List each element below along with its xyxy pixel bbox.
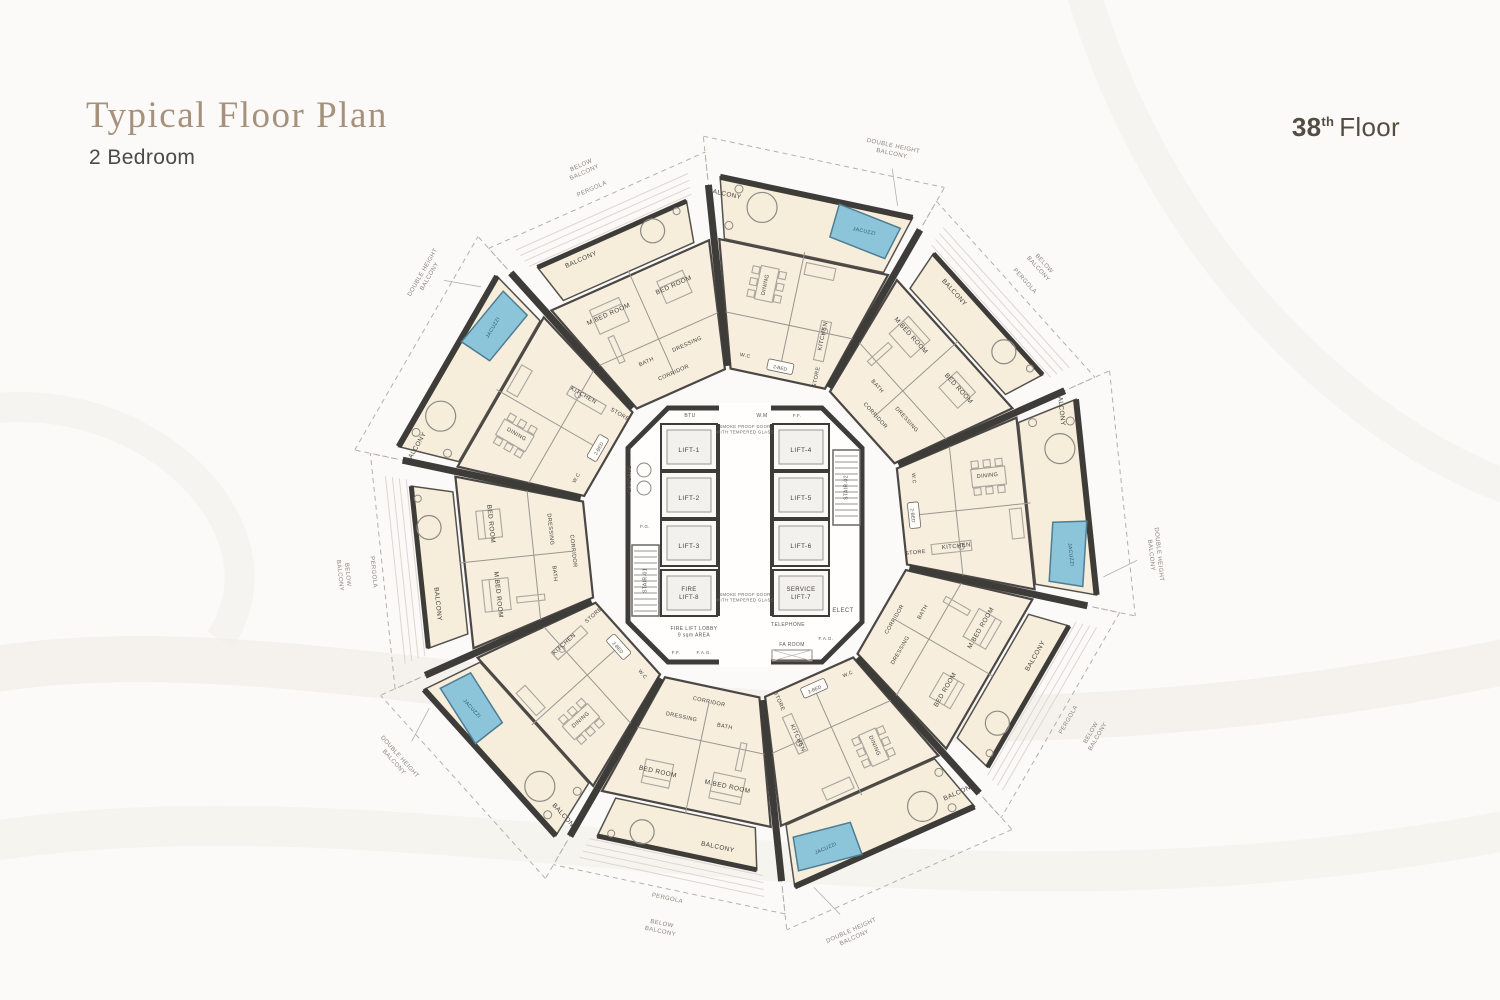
lift-label: LIFT-6 [790, 543, 811, 550]
lift-left-1: LIFT-2 [661, 472, 717, 518]
lift-label: LIFT-2 [678, 495, 699, 502]
wm-label: W.M [756, 413, 767, 419]
double-height-balcony-label: DOUBLE HEIGHTBALCONY [864, 138, 920, 163]
below-balcony-label: BELOWBALCONY [1025, 250, 1056, 283]
elect-label: ELECT [832, 608, 853, 614]
btu-label: BTU [684, 413, 695, 419]
lift-label: LIFT-1 [678, 447, 699, 454]
lift-label: LIFT-4 [790, 447, 811, 454]
pergola-label: PERGOLA [576, 180, 608, 198]
pergola-label: PERGOLA [1012, 268, 1038, 296]
smoke-door-note: SMOKE PROOF DOORWITH TEMPERED GLASS [716, 424, 774, 434]
pergola-label: PERGOLA [368, 556, 377, 588]
stair-label: STAIR-01 [643, 568, 649, 593]
double-height-balcony-label: DOUBLE HEIGHTBALCONY [1145, 527, 1164, 582]
below-balcony-label: BELOWBALCONY [335, 559, 352, 592]
fag-label: F.A.G. [819, 636, 834, 641]
telephone-label: TELEPHONE [771, 622, 805, 628]
room-label: W.C [910, 473, 917, 484]
header: Typical Floor Plan 2 Bedroom [86, 94, 388, 170]
lift-left-0: LIFT-1 [661, 424, 717, 470]
stair-label: STAIR-02 [844, 475, 850, 500]
floor-label: 38thFloor [1292, 112, 1400, 143]
floor-suffix: th [1321, 114, 1334, 129]
fa-room-label: FA ROOM [779, 642, 805, 648]
page-title: Typical Floor Plan [86, 94, 388, 137]
page-subtitle: 2 Bedroom [89, 146, 388, 170]
ff-label: F.F. [672, 650, 681, 655]
garbage-label: GARBAGE [627, 465, 633, 493]
unit-tag: 2-BED [907, 502, 921, 529]
fg-label: F.G. [640, 524, 650, 529]
core: LIFT-1LIFT-2LIFT-3FIRELIFT-8LIFT-4LIFT-5… [627, 403, 862, 667]
stair: STAIR-02 [833, 450, 860, 525]
page: Typical Floor Plan 2 Bedroom 38thFloor D… [0, 0, 1500, 1000]
lift-left-2: LIFT-3 [661, 520, 717, 566]
lobby-door-opening [719, 403, 771, 413]
pergola-label: PERGOLA [651, 893, 683, 905]
smoke-door-note: SMOKE PROOF DOORWITH TEMPERED GLASS [716, 592, 774, 602]
lift-right-0: LIFT-4 [773, 424, 829, 470]
lobby-door-opening [719, 657, 771, 667]
ff-label: F.F. [793, 413, 802, 418]
lift-right-3: SERVICELIFT-7 [773, 570, 829, 616]
lift-label: FIRELIFT-8 [679, 587, 699, 601]
lift-right-2: LIFT-6 [773, 520, 829, 566]
stair: STAIR-01 [632, 545, 659, 616]
lift-right-1: LIFT-5 [773, 472, 829, 518]
double-height-balcony-label: DOUBLE HEIGHTBALCONY [825, 917, 880, 952]
lift-left-3: FIRELIFT-8 [661, 570, 717, 616]
below-balcony-label: BELOWBALCONY [644, 918, 678, 938]
double-height-balcony-label: DOUBLE HEIGHTBALCONY [407, 248, 446, 302]
floor-number: 38 [1292, 112, 1322, 142]
double-height-balcony-label: DOUBLE HEIGHTBALCONY [373, 735, 420, 785]
below-balcony-label: BELOWBALCONY [566, 157, 600, 182]
lift-label: LIFT-3 [678, 543, 699, 550]
lift-label: LIFT-5 [790, 495, 811, 502]
floor-word: Floor [1339, 112, 1400, 142]
fag-label: F.A.G. [697, 650, 712, 655]
